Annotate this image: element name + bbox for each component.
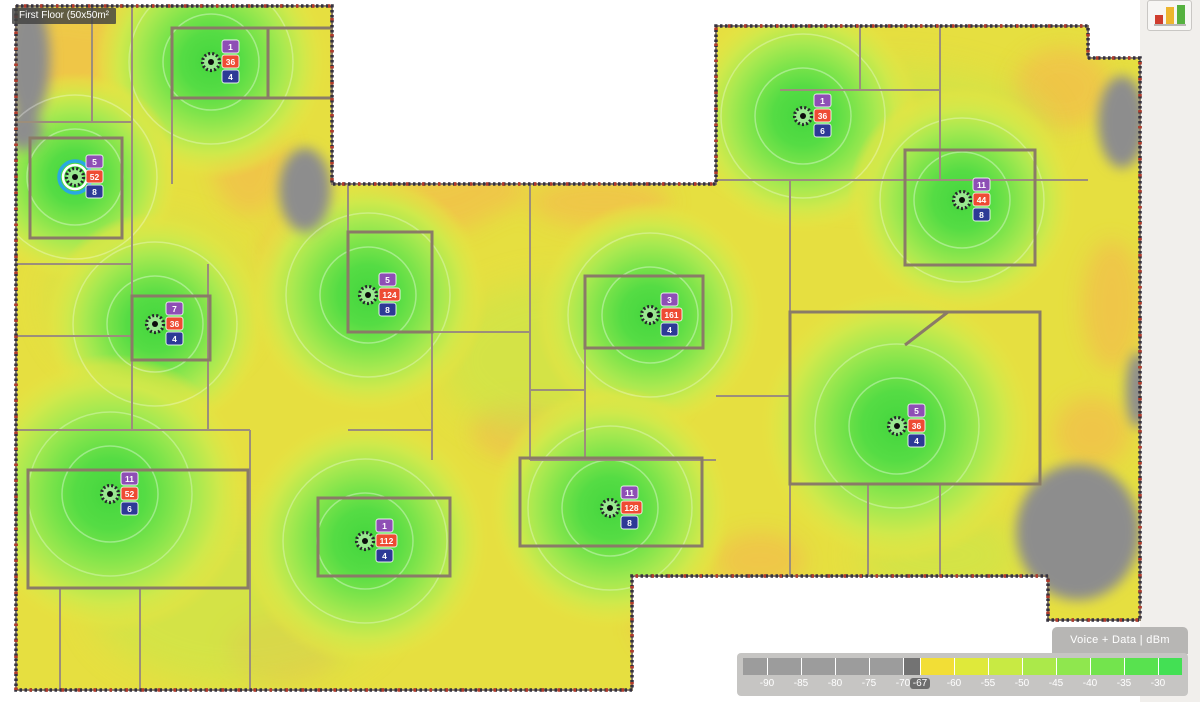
ap-badge-24ghz-label: 4 [667, 325, 672, 335]
ap-badge-6ghz-label: 11 [625, 488, 634, 498]
ap-antenna-center [107, 491, 113, 497]
legend-tick: -35 [1110, 677, 1138, 691]
legend-tick: -40 [1076, 677, 1104, 691]
legend-segment [835, 658, 869, 675]
ap-antenna-center [894, 423, 900, 429]
ap-antenna-center [607, 505, 613, 511]
legend-segment [743, 658, 767, 675]
ap-badge-24ghz-label: 8 [92, 187, 97, 197]
ap-antenna-center [365, 292, 371, 298]
legend-tick: -55 [974, 677, 1002, 691]
ap-badge-6ghz-label: 1 [820, 96, 825, 106]
ap-badge-24ghz-label: 4 [172, 334, 177, 344]
legend-segment [1022, 658, 1056, 675]
ap-badge-5ghz-label: 124 [382, 290, 396, 300]
legend-tick: -80 [821, 677, 849, 691]
legend-title-tab[interactable]: Voice + Data | dBm [1052, 627, 1188, 654]
ap-badge-24ghz-label: 6 [820, 126, 825, 136]
ap-badge-6ghz-label: 11 [977, 180, 986, 190]
ap-badge-6ghz-label: 5 [385, 275, 390, 285]
legend-segment [869, 658, 903, 675]
legend-tick: -85 [787, 677, 815, 691]
legend-segment [1056, 658, 1090, 675]
ap-badge-6ghz-label: 11 [125, 474, 134, 484]
legend-tick: -45 [1042, 677, 1070, 691]
ap-badge-24ghz-label: 4 [228, 72, 233, 82]
legend-tick-labels: -90-85-80-75-70-67-60-55-50-45-40-35-30 [743, 677, 1182, 693]
survey-viewport: 1364552873645124831614136611448536411526… [0, 0, 1200, 702]
ap-badge-5ghz-label: 161 [664, 310, 678, 320]
ap-badge-6ghz-label: 1 [382, 521, 387, 531]
legend-segment [1090, 658, 1124, 675]
legend-segment [1158, 658, 1182, 675]
ap-antenna-center [152, 321, 158, 327]
ap-badge-5ghz-label: 44 [977, 195, 987, 205]
legend-tick: -30 [1144, 677, 1172, 691]
ap-antenna-center [208, 59, 214, 65]
ap-badge-24ghz-label: 8 [385, 305, 390, 315]
legend-segment [903, 658, 920, 675]
ap-badge-5ghz-label: 36 [818, 111, 828, 121]
ap-antenna-center [800, 113, 806, 119]
legend-color-scale[interactable]: -90-85-80-75-70-67-60-55-50-45-40-35-30 [737, 653, 1188, 696]
ap-badge-24ghz-label: 8 [979, 210, 984, 220]
ap-badge-24ghz-label: 4 [382, 551, 387, 561]
ap-badge-5ghz-label: 128 [624, 503, 638, 513]
ap-badge-5ghz-label: 36 [912, 421, 922, 431]
ap-badge-6ghz-label: 3 [667, 295, 672, 305]
ap-antenna-center [362, 538, 368, 544]
legend-tick: -90 [753, 677, 781, 691]
ap-badge-6ghz-label: 7 [172, 304, 177, 314]
ap-badge-24ghz-label: 4 [914, 436, 919, 446]
legend-segment [920, 658, 954, 675]
floor-plan-map[interactable]: 1364552873645124831614136611448536411526… [0, 0, 1200, 702]
ap-antenna-center [72, 174, 78, 180]
ap-badge-24ghz-label: 6 [127, 504, 132, 514]
ap-antenna-center [647, 312, 653, 318]
ap-badge-6ghz-label: 1 [228, 42, 233, 52]
floor-name-label: First Floor (50x50m² [12, 8, 116, 24]
ap-badge-6ghz-label: 5 [92, 157, 97, 167]
legend-segment [801, 658, 835, 675]
ap-badge-5ghz-label: 36 [170, 319, 180, 329]
legend-gradient-strip [743, 658, 1182, 675]
ap-badge-24ghz-label: 8 [627, 518, 632, 528]
legend-segment [988, 658, 1022, 675]
ap-badge-5ghz-label: 52 [125, 489, 135, 499]
legend-tick: -50 [1008, 677, 1036, 691]
legend-segment [767, 658, 801, 675]
ap-badge-6ghz-label: 5 [914, 406, 919, 416]
ap-badge-5ghz-label: 36 [226, 57, 236, 67]
legend-tick: -75 [855, 677, 883, 691]
legend-segment [954, 658, 988, 675]
legend-tick: -60 [940, 677, 968, 691]
bar-chart-icon [1148, 1, 1191, 30]
legend-segment [1124, 658, 1158, 675]
report-chart-button[interactable] [1147, 0, 1192, 31]
ap-badge-5ghz-label: 52 [90, 172, 100, 182]
legend-tick-selected: -67 [906, 677, 934, 691]
ap-antenna-center [959, 197, 965, 203]
ap-badge-5ghz-label: 112 [380, 536, 394, 546]
